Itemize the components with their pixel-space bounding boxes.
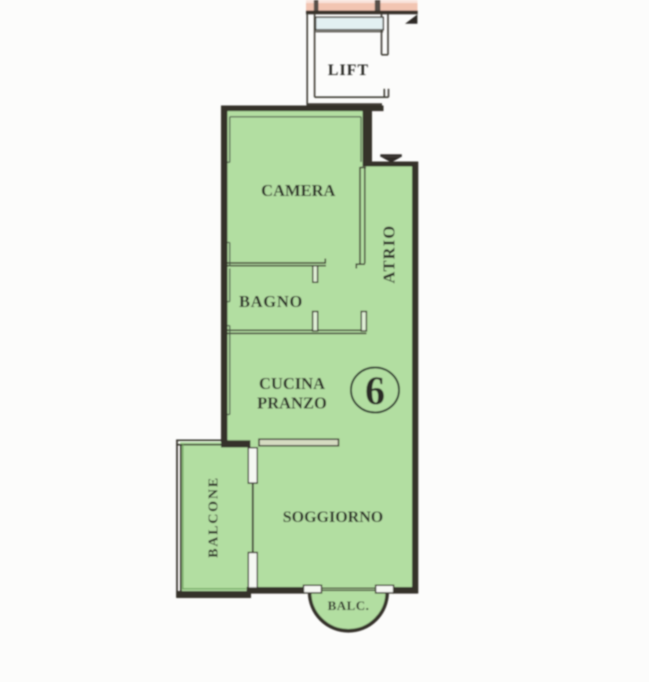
svg-text:SOGGIORNO: SOGGIORNO [283, 509, 383, 526]
svg-text:ATRIO: ATRIO [380, 225, 399, 284]
svg-text:CUCINA: CUCINA [259, 374, 325, 393]
svg-text:BALC.: BALC. [328, 598, 370, 613]
svg-text:6: 6 [365, 368, 385, 413]
svg-text:BALCONE: BALCONE [206, 476, 221, 558]
svg-text:LIFT: LIFT [328, 62, 369, 79]
svg-text:CAMERA: CAMERA [261, 181, 335, 200]
svg-text:PRANZO: PRANZO [257, 394, 327, 413]
svg-text:BAGNO: BAGNO [239, 292, 303, 311]
